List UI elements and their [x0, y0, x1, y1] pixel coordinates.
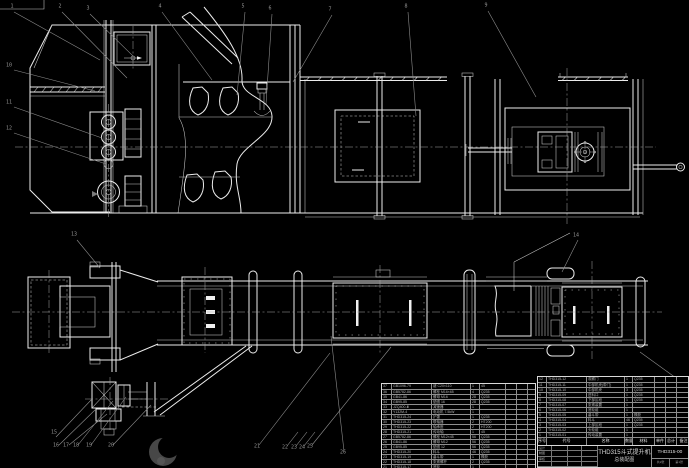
table-cell: 减速器	[432, 405, 471, 409]
table-cell	[506, 405, 517, 409]
table-cell: Q235	[633, 383, 655, 387]
part-callout: 23	[291, 446, 297, 451]
table-cell: 螺栓 M12×45	[432, 435, 471, 439]
table-cell: 1	[471, 430, 480, 434]
table-cell: 28	[471, 395, 480, 399]
main-parts-table: 12THD315-12观察门1Q235 11THD315-11中部机壳(带门)1…	[537, 376, 689, 447]
table-cell	[506, 425, 517, 429]
table-cell: 畚斗带	[432, 455, 471, 459]
part-callout: 19	[86, 444, 92, 449]
drive-unit	[92, 382, 147, 435]
table-row: 11THD315-11中部机壳(带门)1Q235	[538, 382, 688, 387]
table-cell	[677, 388, 689, 392]
table-cell	[528, 460, 537, 464]
table-cell	[677, 423, 689, 427]
table-cell: 1	[471, 384, 480, 389]
table-row: 26GB41-86螺母 M1256Q235	[382, 439, 535, 444]
table-row: 1THD315-01传动装置1	[538, 432, 688, 437]
table-cell	[655, 428, 666, 432]
table-cell: Q235	[633, 398, 655, 402]
table-cell: 螺母 M16	[432, 395, 471, 399]
table-cell: THD315-10	[547, 388, 587, 392]
table-cell	[666, 388, 677, 392]
table-cell	[666, 428, 677, 432]
table-cell	[666, 393, 677, 397]
table-cell: THD315-18	[392, 460, 432, 464]
table-cell	[666, 403, 677, 407]
table-cell	[517, 425, 528, 429]
signature-cell	[552, 462, 568, 467]
table-cell: Q235	[480, 440, 506, 444]
table-cell: 护罩	[432, 415, 471, 419]
table-row: 37GB1096-79键 C20×110145	[382, 384, 535, 389]
table-cell: 11	[538, 383, 547, 387]
table-cell: 螺栓 M16×65	[432, 390, 471, 394]
part-callout: 11	[6, 101, 12, 106]
table-cell: 32	[382, 410, 392, 414]
table-cell: 46	[471, 450, 480, 454]
table-cell: 畚斗带	[587, 413, 625, 417]
table-cell: 1	[625, 377, 633, 382]
table-cell: 上部区段	[587, 423, 625, 427]
part-callout: 14	[573, 234, 579, 239]
sheet-count: 共2张第1张	[652, 459, 688, 467]
part-callout: 9	[484, 4, 487, 9]
table-cell: THD315-11	[547, 383, 587, 387]
table-cell: THD315-08	[547, 398, 587, 402]
part-callout: 22	[282, 446, 288, 451]
part-callout: 8	[404, 5, 407, 10]
table-cell: HT200	[480, 425, 506, 429]
table-cell	[655, 418, 666, 422]
table-cell	[517, 384, 528, 389]
table-cell: 45	[480, 384, 506, 389]
table-cell	[655, 398, 666, 402]
table-cell: Q235	[480, 400, 506, 404]
part-callout: 21	[254, 445, 260, 450]
table-cell: 3	[538, 423, 547, 427]
table-cell: 7	[538, 403, 547, 407]
table-cell: 56	[471, 440, 480, 444]
drawing-number-box: THD315-00 共2张第1张	[652, 446, 688, 467]
table-row: 33JZQ400-Ⅲ减速器1	[382, 404, 535, 409]
table-row: 22THD315-18张紧螺杆2Q235	[382, 459, 535, 464]
table-cell: 联轴器	[432, 420, 471, 424]
table-cell: 1	[625, 393, 633, 397]
table-cell: 4	[471, 390, 480, 394]
table-cell	[506, 420, 517, 424]
table-cell: 12	[538, 377, 547, 382]
table-cell: THD315-05	[547, 413, 587, 417]
table-cell	[506, 440, 517, 444]
cad-drawing-sheet: 1234567891011121314151617181920212223242…	[0, 0, 689, 468]
table-row: 12THD315-12观察门1Q235	[538, 377, 688, 382]
table-cell: Q235	[633, 423, 655, 427]
table-cell	[506, 415, 517, 419]
table-cell	[480, 410, 506, 414]
table-cell	[633, 403, 655, 407]
table-cell: GB5782-86	[392, 435, 432, 439]
table-cell	[517, 395, 528, 399]
table-cell	[517, 415, 528, 419]
table-cell	[677, 418, 689, 422]
table-cell: GB5782-86	[392, 390, 432, 394]
table-cell: THD315-04	[547, 418, 587, 422]
table-cell: Y132M-4	[392, 410, 432, 414]
table-cell: 料斗	[587, 418, 625, 422]
table-cell	[677, 398, 689, 402]
table-cell	[677, 393, 689, 397]
table-cell: 1	[625, 383, 633, 387]
table-cell: 26	[382, 440, 392, 444]
table-cell: Q235	[480, 445, 506, 449]
table-cell	[677, 383, 689, 387]
table-cell: GB95-85	[392, 445, 432, 449]
table-cell: Q235	[633, 377, 655, 382]
table-row: 7THD315-07张紧装置1	[538, 402, 688, 407]
table-cell: Q235	[480, 415, 506, 419]
table-cell	[528, 440, 537, 444]
table-cell	[666, 413, 677, 417]
table-cell: 6	[538, 408, 547, 412]
part-callout: 16	[53, 444, 59, 449]
part-callout: 7	[328, 8, 331, 13]
table-cell: 观察门	[587, 377, 625, 382]
table-cell	[528, 450, 537, 454]
signature-cell	[582, 462, 598, 467]
table-cell: 30	[382, 420, 392, 424]
table-row: 34GB95-85垫圈 1628Q235	[382, 399, 535, 404]
table-row: 25GB95-85垫圈 1256Q235	[382, 444, 535, 449]
table-cell	[677, 413, 689, 417]
table-cell	[528, 410, 537, 414]
signature-cell	[568, 462, 582, 467]
table-cell: 36	[382, 390, 392, 394]
table-row: 24THD315-20料斗46Q235	[382, 449, 535, 454]
table-cell	[655, 383, 666, 387]
table-cell	[528, 395, 537, 399]
table-cell	[655, 433, 666, 437]
part-callout: 15	[51, 431, 57, 436]
table-cell: 橡胶	[633, 413, 655, 417]
table-cell	[677, 408, 689, 412]
table-cell	[517, 410, 528, 414]
sheet-count-cell: 第1张	[670, 459, 688, 467]
table-cell: 22	[382, 460, 392, 464]
table-cell	[528, 430, 537, 434]
table-cell: 1	[471, 405, 480, 409]
table-cell: 张紧螺杆	[432, 460, 471, 464]
table-row: 23THD315-19畚斗带1橡胶	[382, 454, 535, 459]
table-cell: 25	[382, 445, 392, 449]
table-cell: Q235	[480, 390, 506, 394]
side-elevation-view	[30, 7, 685, 219]
table-cell: 料斗	[432, 450, 471, 454]
table-cell: 1	[538, 433, 547, 437]
table-cell	[666, 377, 677, 382]
table-cell	[517, 460, 528, 464]
table-cell	[655, 423, 666, 427]
table-cell: 螺母 M12	[432, 440, 471, 444]
table-cell: 进料口	[587, 393, 625, 397]
table-cell	[517, 440, 528, 444]
table-cell	[506, 390, 517, 394]
table-cell	[655, 413, 666, 417]
table-row: 8THD315-08下部区段1Q235	[538, 397, 688, 402]
table-row: 36GB5782-86螺栓 M16×654Q235	[382, 389, 535, 394]
table-cell	[506, 395, 517, 399]
table-cell	[517, 400, 528, 404]
table-cell	[633, 433, 655, 437]
table-cell: THD315-22	[392, 425, 432, 429]
table-row: 6THD315-06底轮组1	[538, 407, 688, 412]
table-cell	[517, 435, 528, 439]
table-cell	[666, 383, 677, 387]
part-callout: 13	[71, 233, 77, 238]
table-cell	[677, 433, 689, 437]
watermark-logo	[149, 436, 180, 466]
part-callout: 25	[307, 445, 313, 450]
table-cell: THD315-02	[547, 428, 587, 432]
table-cell: THD315-20	[392, 450, 432, 454]
table-cell: 9	[538, 393, 547, 397]
table-cell	[655, 403, 666, 407]
part-callout: 3	[86, 7, 89, 12]
table-cell: THD315-24	[392, 415, 432, 419]
standard-parts-table: 37GB1096-79键 C20×110145 36GB5782-86螺栓 M1…	[381, 383, 536, 468]
table-cell	[528, 435, 537, 439]
table-cell: 28	[382, 430, 392, 434]
part-callout: 17	[63, 444, 69, 449]
table-cell: 2	[471, 420, 480, 424]
table-cell: 33	[382, 405, 392, 409]
table-cell: 10	[538, 388, 547, 392]
table-cell	[677, 428, 689, 432]
table-cell: Q235	[480, 395, 506, 399]
sheet-count-cell: 共2张	[652, 459, 671, 467]
table-cell: 传动装置	[587, 433, 625, 437]
table-cell: 8	[538, 398, 547, 402]
table-cell: 1	[625, 428, 633, 432]
table-row: 2THD315-02头轮组1	[538, 427, 688, 432]
table-row: 35GB41-86螺母 M1628Q235	[382, 394, 535, 399]
signature-cell	[538, 462, 552, 467]
table-cell	[633, 428, 655, 432]
table-cell	[506, 445, 517, 449]
part-callout: 2	[58, 5, 61, 10]
table-cell: 中部机壳	[587, 388, 625, 392]
table-cell: HT200	[480, 420, 506, 424]
table-row: 21THD315-17底轮1	[382, 464, 535, 468]
table-cell: 27	[382, 435, 392, 439]
frame-corner	[0, 0, 44, 9]
table-cell: 3	[625, 388, 633, 392]
table-cell: 下部区段	[587, 398, 625, 402]
table-cell: 张紧装置	[587, 403, 625, 407]
take-up-section	[466, 73, 685, 215]
table-cell: GB95-85	[392, 400, 432, 404]
table-cell	[517, 455, 528, 459]
table-cell: THD315-09	[547, 393, 587, 397]
drive-platform	[114, 32, 150, 65]
part-callout: 10	[6, 64, 12, 69]
table-row: 32Y132M-4电动机 7.5kW1	[382, 409, 535, 414]
table-cell: THD315-19	[392, 455, 432, 459]
table-cell: Q235	[633, 393, 655, 397]
table-cell: 28	[471, 400, 480, 404]
table-cell: 2	[471, 460, 480, 464]
table-cell: 键 C20×110	[432, 384, 471, 389]
table-cell	[517, 420, 528, 424]
table-cell	[655, 377, 666, 382]
table-row: 31THD315-24护罩1Q235	[382, 414, 535, 419]
table-cell: 56	[471, 445, 480, 449]
part-callout: 24	[299, 446, 305, 451]
table-cell	[666, 408, 677, 412]
table-cell: THD315-07	[547, 403, 587, 407]
table-row: 10THD315-10中部机壳3Q235	[538, 387, 688, 392]
part-callout: 18	[73, 444, 79, 449]
table-cell	[655, 408, 666, 412]
part-callout: 12	[6, 127, 12, 132]
table-cell: 23	[382, 455, 392, 459]
table-cell: 35	[382, 395, 392, 399]
table-cell	[666, 398, 677, 402]
table-cell	[528, 400, 537, 404]
table-cell	[506, 410, 517, 414]
table-cell: THD315-01	[547, 433, 587, 437]
table-cell	[528, 420, 537, 424]
table-cell: Q235	[480, 460, 506, 464]
table-cell: THD315-03	[547, 423, 587, 427]
table-cell	[517, 430, 528, 434]
table-row: 9THD315-09进料口1Q235	[538, 392, 688, 397]
table-cell: 56	[471, 435, 480, 439]
table-row: 28THD315-21传动轴145	[382, 429, 535, 434]
signature-grid: 设计制图审核	[538, 446, 598, 467]
table-row: 5THD315-05畚斗带1橡胶	[538, 412, 688, 417]
table-cell: 底轮组	[587, 408, 625, 412]
table-cell: 中部机壳(带门)	[587, 383, 625, 387]
table-cell: 1	[471, 455, 480, 459]
table-cell	[506, 450, 517, 454]
table-cell: Q235	[633, 418, 655, 422]
drawing-subtitle-text: 总装配图	[614, 457, 634, 463]
table-cell	[677, 377, 689, 382]
table-cell	[666, 418, 677, 422]
table-cell	[528, 390, 537, 394]
title-block: 设计制图审核 THD315斗式提升机 总装配图 THD315-00 共2张第1张	[537, 445, 689, 468]
table-cell	[506, 384, 517, 389]
table-cell	[517, 450, 528, 454]
table-cell: Q235	[633, 388, 655, 392]
table-cell: 31	[382, 415, 392, 419]
table-cell: JZQ400-Ⅲ	[392, 405, 432, 409]
table-cell: THD315-23	[392, 420, 432, 424]
table-cell: 46	[625, 418, 633, 422]
drawing-title: THD315斗式提升机 总装配图	[598, 446, 652, 467]
table-cell: GB1096-79	[392, 384, 432, 389]
table-row: 30THD315-23联轴器2HT200	[382, 419, 535, 424]
table-cell: 头轮组	[587, 428, 625, 432]
table-cell: 1	[625, 413, 633, 417]
part-callout: 1	[10, 5, 13, 10]
table-cell: Q235	[480, 450, 506, 454]
table-row: 27GB5782-86螺栓 M12×4556Q235	[382, 434, 535, 439]
table-cell	[517, 445, 528, 449]
table-cell: 29	[382, 425, 392, 429]
table-cell	[666, 433, 677, 437]
part-callout: 6	[268, 7, 271, 12]
table-cell	[506, 435, 517, 439]
centerlines	[12, 26, 662, 432]
table-cell: 45	[480, 430, 506, 434]
table-cell	[666, 423, 677, 427]
table-cell: 1	[625, 423, 633, 427]
table-cell: GB41-86	[392, 440, 432, 444]
table-cell: 2	[471, 425, 480, 429]
table-cell: 1	[625, 408, 633, 412]
table-cell	[633, 408, 655, 412]
part-callout: 4	[158, 5, 161, 10]
drawing-number: THD315-00	[652, 446, 688, 459]
table-cell: THD315-12	[547, 377, 587, 382]
drawing-title-text: THD315斗式提升机	[598, 450, 650, 457]
table-cell: 垫圈 16	[432, 400, 471, 404]
table-cell	[480, 405, 506, 409]
table-cell: 轴承座	[432, 425, 471, 429]
table-cell: 5	[538, 413, 547, 417]
table-row: 4THD315-04料斗46Q235	[538, 417, 688, 422]
table-cell	[506, 460, 517, 464]
table-cell: 4	[538, 418, 547, 422]
table-cell: 24	[382, 450, 392, 454]
part-callout: 5	[241, 5, 244, 10]
table-cell	[655, 393, 666, 397]
buckets	[184, 87, 238, 202]
table-cell: 1	[625, 403, 633, 407]
table-cell: 1	[471, 415, 480, 419]
table-cell: 电动机 7.5kW	[432, 410, 471, 414]
table-cell	[506, 400, 517, 404]
table-row: 29THD315-22轴承座2HT200	[382, 424, 535, 429]
part-callout: 26	[340, 451, 346, 456]
table-cell	[655, 388, 666, 392]
table-cell	[528, 384, 537, 389]
table-cell: Q235	[480, 435, 506, 439]
table-cell	[528, 425, 537, 429]
table-cell: THD315-21	[392, 430, 432, 434]
table-cell: 2	[538, 428, 547, 432]
table-row: 3THD315-03上部区段1Q235	[538, 422, 688, 427]
table-cell	[528, 415, 537, 419]
table-cell: 37	[382, 384, 392, 389]
table-cell: 1	[625, 433, 633, 437]
table-cell	[517, 390, 528, 394]
part-callout: 20	[108, 444, 114, 449]
table-cell	[528, 405, 537, 409]
table-cell: THD315-06	[547, 408, 587, 412]
table-cell: 传动轴	[432, 430, 471, 434]
table-cell	[528, 455, 537, 459]
table-cell	[506, 455, 517, 459]
table-cell: 垫圈 12	[432, 445, 471, 449]
table-cell: 1	[625, 398, 633, 402]
table-cell	[677, 403, 689, 407]
table-cell	[517, 405, 528, 409]
table-cell	[528, 445, 537, 449]
table-cell: GB41-86	[392, 395, 432, 399]
